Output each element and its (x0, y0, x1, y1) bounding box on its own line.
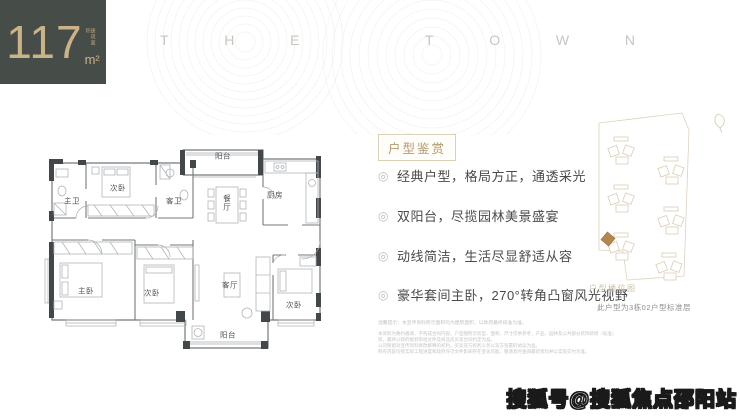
room-label-master-bedroom: 主卧 (78, 286, 94, 297)
room-label-bedroom-top: 次卧 (110, 183, 126, 194)
room-label-balcony-bottom: 阳台 (220, 330, 236, 341)
brand-wordmark: T H E T O W N (160, 32, 635, 48)
brand-letter: O (489, 32, 500, 48)
disclaimer-paragraph: 本资料为要约邀请，不构成合同内容。户型图所示房型、面积、尺寸仅供参考，产品、园林… (378, 331, 615, 343)
sohu-watermark: 搜狐号@搜狐焦点邵阳站 (506, 383, 737, 412)
section-title-unit-appreciation: 户型鉴赏 (378, 134, 456, 161)
floor-plan-drawing (28, 143, 366, 355)
feature-bullet-3: ◎ 动线简洁，生活尽显舒适从容 (378, 246, 573, 265)
brand-letter: T (160, 32, 169, 48)
brand-letter: E (290, 32, 299, 48)
area-unit: m² (85, 52, 100, 67)
circle-bullet-icon: ◎ (378, 210, 389, 222)
room-label-guest-bath: 客卫 (166, 196, 182, 207)
disclaimer-paragraph: 所有内容均受实际工程进度和政府许可文件影响存在变化可能，敬请及时查阅最新资料并以… (378, 349, 615, 355)
circle-bullet-icon: ◎ (378, 289, 389, 301)
area-badge: 117 建筑面积 m² (0, 0, 106, 84)
page: 117 建筑面积 m² T H E T O W N (0, 0, 740, 416)
room-label-living-room: 客厅 (222, 280, 238, 291)
room-label-master-bath: 主卫 (64, 196, 80, 207)
disclaimer-line: 温馨提示：本宣传资料所示面积均为建筑面积，以政府最终核准为准。 (378, 320, 615, 327)
feature-bullet-1: ◎ 经典户型，格局方正，通透采光 (378, 166, 586, 185)
brand-letter: W (556, 32, 569, 48)
brand-letter: H (224, 32, 234, 48)
brand-word-gap (355, 32, 369, 48)
room-label-bedroom-mid: 次卧 (144, 288, 160, 299)
room-label-balcony-top: 阳台 (215, 151, 231, 162)
circle-bullet-icon: ◎ (378, 170, 389, 182)
room-label-bedroom-right: 次卧 (286, 300, 302, 311)
site-map-drawing (587, 108, 737, 288)
brand-letter: T (425, 32, 434, 48)
room-label-kitchen: 厨房 (267, 190, 283, 201)
floor-plan: 阳台 次卧 主卫 客卫 餐厅 厨房 主卧 次卧 客厅 次卧 阳台 (28, 143, 366, 355)
disclaimer: 温馨提示：本宣传资料所示面积均为建筑面积，以政府最终核准为准。 本资料为要约邀请… (378, 320, 615, 355)
feature-text: 经典户型，格局方正，通透采光 (397, 166, 586, 185)
area-value: 117 (6, 19, 82, 65)
circle-bullet-icon: ◎ (378, 250, 389, 262)
brand-letter: N (625, 32, 635, 48)
site-map-caption: 户型楼位图 (589, 283, 637, 294)
feature-text: 双阳台，尽揽园林美景盛宴 (397, 206, 559, 225)
feature-text: 动线简洁，生活尽显舒适从容 (397, 246, 573, 265)
site-map-note: 此户型为3栋02户型标准层 (597, 302, 691, 313)
site-location-map (587, 108, 737, 288)
leaf-icon (715, 114, 724, 133)
area-label: 建筑面积 (85, 28, 95, 50)
feature-bullet-2: ◎ 双阳台，尽揽园林美景盛宴 (378, 206, 559, 225)
room-label-dining: 餐厅 (222, 195, 233, 212)
